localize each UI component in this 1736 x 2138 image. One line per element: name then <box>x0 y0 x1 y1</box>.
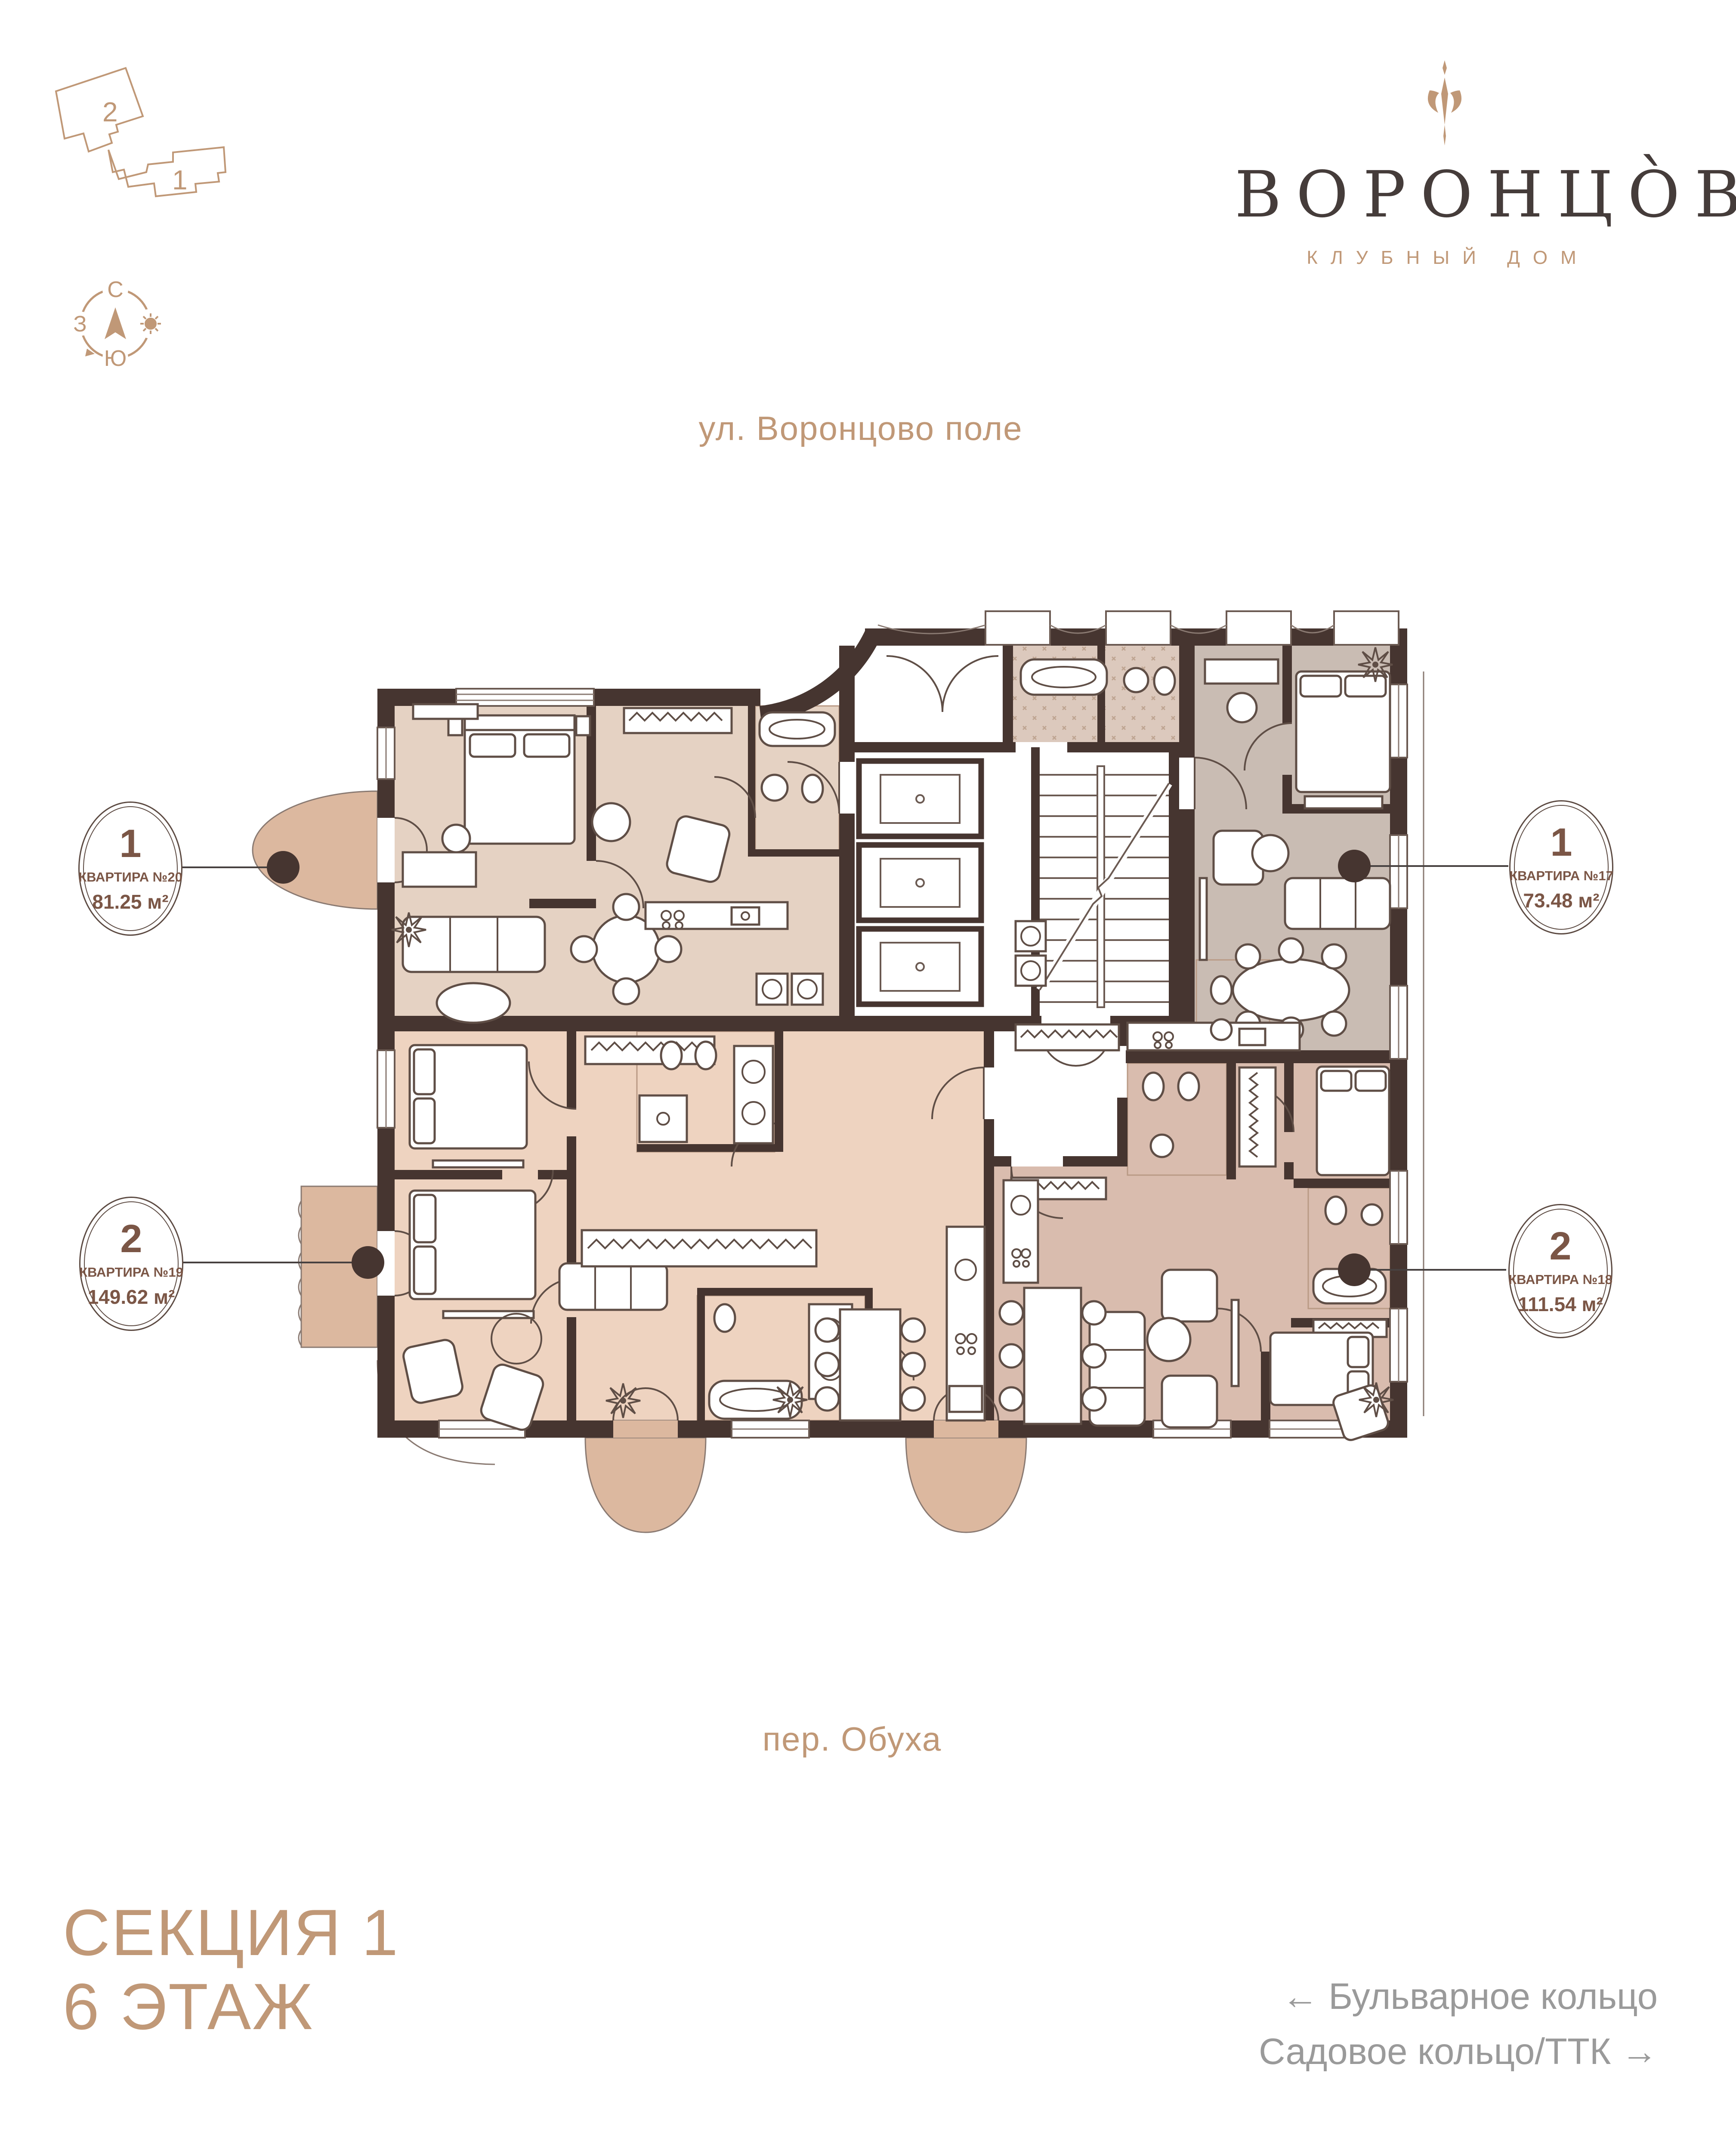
floor-title: 6 ЭТАЖ <box>63 1970 399 2044</box>
elevator-1 <box>859 761 981 836</box>
section-floor-title: СЕКЦИЯ 1 6 ЭТАЖ <box>63 1896 399 2044</box>
section-title: СЕКЦИЯ 1 <box>63 1896 399 1970</box>
apt-18-rooms: 2 <box>1549 1226 1571 1266</box>
direction-garden-ring-ttk: Садовое кольцо/ТТК → <box>1259 2024 1658 2079</box>
apt-18-marker-dot <box>1338 1253 1371 1286</box>
apt-18-name: КВАРТИРА №18 <box>1508 1272 1612 1287</box>
apt-17-name: КВАРТИРА №17 <box>1509 868 1613 884</box>
apt-20-name: КВАРТИРА №20 <box>78 869 182 885</box>
apt-19-rooms: 2 <box>120 1219 142 1259</box>
apt-18-area: 111.54 м² <box>1518 1293 1603 1316</box>
elevator-3 <box>859 929 981 1004</box>
curved-facade-wall <box>760 633 874 715</box>
apt-20-badge[interactable]: 1 КВАРТИРА №20 81.25 м² <box>78 801 182 936</box>
staircase <box>1040 766 1169 1007</box>
apt-19-badge[interactable]: 2 КВАРТИРА №19 149.62 м² <box>79 1197 183 1331</box>
elevator-2 <box>859 845 981 920</box>
page: { "logo": { "title": "ВОРОНЦО̀ВЪ", "subt… <box>0 0 1736 2138</box>
floor-plan <box>0 0 1736 2138</box>
apt-17-marker-dot <box>1338 850 1371 882</box>
apt-20-rooms: 1 <box>119 824 141 863</box>
balcony-apt20 <box>253 791 377 909</box>
apt-20-area: 81.25 м² <box>92 890 168 913</box>
apt-20-marker-dot <box>267 851 300 884</box>
core <box>859 761 1169 1007</box>
directions: ← Бульварное кольцо Садовое кольцо/ТТК → <box>1259 1969 1658 2079</box>
apt-17-badge[interactable]: 1 КВАРТИРА №17 73.48 м² <box>1509 800 1613 934</box>
apt-17-area: 73.48 м² <box>1523 889 1599 912</box>
apt-17-rooms: 1 <box>1550 823 1572 862</box>
apt-18-badge[interactable]: 2 КВАРТИРА №18 111.54 м² <box>1508 1204 1612 1338</box>
apt-19-area: 149.62 м² <box>88 1285 175 1309</box>
apt-19-name: КВАРТИРА №19 <box>79 1265 183 1280</box>
direction-boulevard-ring: ← Бульварное кольцо <box>1259 1969 1658 2024</box>
apt-19-marker-dot <box>352 1246 384 1279</box>
